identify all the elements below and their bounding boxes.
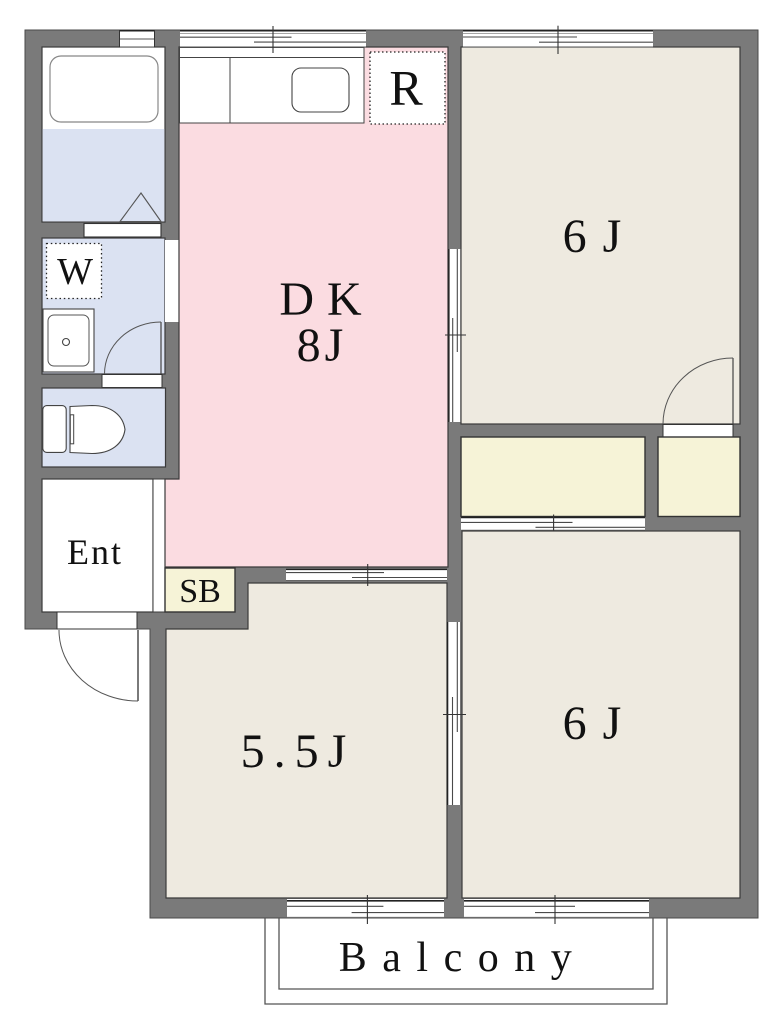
svg-text:Balcony: Balcony	[339, 935, 587, 981]
svg-text:5.5J: 5.5J	[241, 725, 356, 778]
svg-text:6J: 6J	[563, 210, 638, 263]
svg-text:6J: 6J	[563, 697, 638, 750]
svg-text:W: W	[57, 251, 93, 293]
svg-text:SB: SB	[179, 573, 221, 610]
svg-text:8J: 8J	[297, 319, 348, 372]
svg-text:Ent: Ent	[67, 532, 123, 572]
svg-text:R: R	[389, 60, 423, 116]
